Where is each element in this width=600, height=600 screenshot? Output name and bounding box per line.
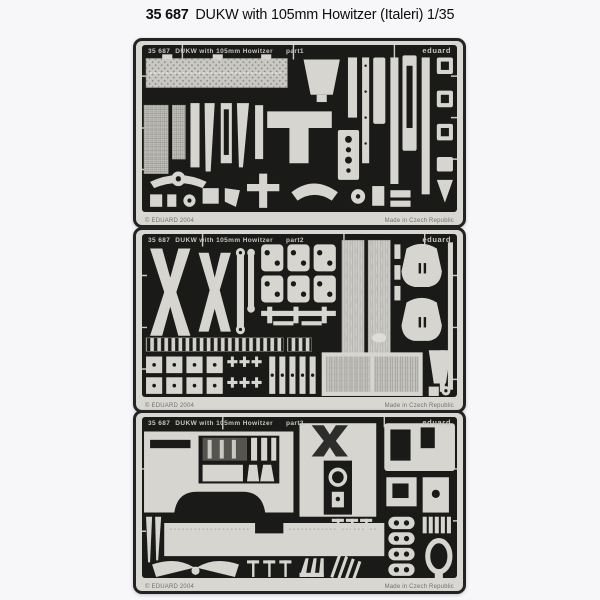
fret2-part-label: part2 (286, 237, 304, 244)
fret1-brand-logo: eduard (422, 46, 451, 55)
fret2-title-visible: DUKW with 105mm Howitzer (175, 237, 273, 244)
fret2-made-in: Made in Czech Republic (385, 403, 454, 409)
fret3-title: DUKW with 105mm Howitzer (175, 420, 273, 427)
product-name: DUKW with 105mm Howitzer (Italeri) 1/35 (195, 6, 454, 23)
fret3-cavity (142, 417, 457, 578)
fret1-title: DUKW with 105mm Howitzer (175, 48, 273, 55)
fret3-etched-header: 35 687DUKW with 105mm Howitzerpart3 edua… (148, 418, 451, 427)
fret3-footer: © EDUARD 2004 Made in Czech Republic (145, 584, 454, 590)
fret2-catalog: 35 687 (148, 237, 170, 244)
product-title: 35 687DUKW with 105mm Howitzer (Italeri)… (12, 6, 588, 23)
fret1-header-label: 35 687DUKW with 105mm Howitzerpart1 (148, 48, 309, 55)
fret2-header-label: 35 68735 687 DUKW with 105mm HowitzerDUK… (148, 237, 309, 244)
fret1-made-in: Made in Czech Republic (385, 218, 454, 224)
fret2-parts-graphic (142, 234, 457, 397)
fret2-brand-logo: eduard (422, 235, 451, 244)
fret1-part-label: part1 (286, 48, 304, 55)
fret3-brand-logo: eduard (422, 418, 451, 427)
fret2-copyright: © EDUARD 2004 (145, 403, 194, 409)
fret3-header-label: 35 687DUKW with 105mm Howitzerpart3 (148, 420, 309, 427)
photoetch-fret-3: 35 687DUKW with 105mm Howitzerpart3 edua… (133, 410, 466, 594)
fret3-catalog: 35 687 (148, 420, 170, 427)
photoetch-fret-1: 35 687DUKW with 105mm Howitzerpart1 edua… (133, 38, 466, 228)
fret1-etched-header: 35 687DUKW with 105mm Howitzerpart1 edua… (148, 46, 451, 55)
fret1-copyright: © EDUARD 2004 (145, 218, 194, 224)
photoetch-fret-2: 35 68735 687 DUKW with 105mm HowitzerDUK… (133, 227, 466, 413)
fret3-copyright: © EDUARD 2004 (145, 584, 194, 590)
fret3-made-in: Made in Czech Republic (385, 584, 454, 590)
fret1-cavity (142, 45, 457, 212)
fret1-footer: © EDUARD 2004 Made in Czech Republic (145, 218, 454, 224)
fret1-parts-graphic (142, 45, 457, 212)
fret3-part-label: part3 (286, 420, 304, 427)
fret1-catalog: 35 687 (148, 48, 170, 55)
fret2-cavity (142, 234, 457, 397)
fret2-footer: © EDUARD 2004 Made in Czech Republic (145, 403, 454, 409)
fret2-etched-header: 35 68735 687 DUKW with 105mm HowitzerDUK… (148, 235, 451, 244)
catalog-number: 35 687 (146, 6, 189, 23)
fret3-parts-graphic (142, 417, 457, 578)
